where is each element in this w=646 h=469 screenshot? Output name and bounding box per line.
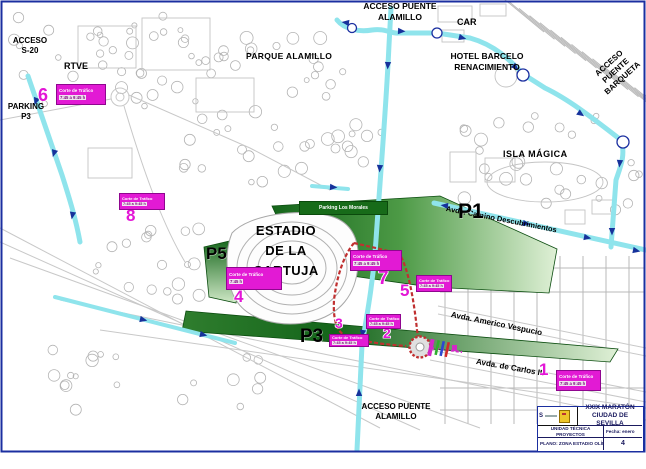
label-isla-magica: ISLA MÁGICA (503, 149, 568, 161)
marker-6: 6 (38, 85, 48, 106)
marker-1-note: Corte de Tráfico 7:45 a 9:45 h (556, 370, 601, 391)
date-field: Fecha: enero (604, 426, 642, 438)
marker-3: 3 (335, 315, 343, 331)
note-time: 7:45 a 9:45 h (559, 381, 586, 386)
note-title: Corte de Tráfico (369, 317, 399, 321)
marker-6-note: Corte de Tráfico 7:45 a 9:45 h (56, 84, 106, 105)
marker-4: 4 (234, 287, 243, 307)
technical-unit: UNIDAD TÉCNICA PROYECTOS (538, 426, 604, 438)
note-time: 7:45 a 9:45 h (59, 95, 86, 100)
plan-title: XXIX MARATÓN CIUDAD DE SEVILLA (578, 407, 642, 426)
label-acceso-puente-alamillo-sur: ACCESO PUENTE ALAMILLO (348, 402, 444, 423)
plano-field: PLANO: ZONA ESTADIO OLÍMPICO (538, 438, 604, 450)
note-title: Corte de Tráfico (419, 279, 449, 283)
parking-p3-label: P3 (300, 326, 323, 348)
marker-3-note: Corte de Tráfico 7:45 a 9:45 h (329, 334, 369, 347)
note-time: 7:45 a 9:45 h (369, 322, 394, 327)
marathon-access-map: ACCESO S-20 RTVE PARKING P3 PARQUE ALAMI… (0, 0, 646, 469)
note-time: 7:45 a 9:45 h (332, 341, 357, 346)
title-block-logo-cell: S (538, 407, 578, 426)
note-title: Corte de Tráfico (332, 336, 362, 340)
marker-5-note: Corte de Tráfico 7:45 a 9:45 h (416, 275, 452, 292)
note-title: Corte de Tráfico (59, 89, 93, 94)
note-title: Corte de Tráfico (559, 375, 593, 380)
label-hotel-barcelo: HOTEL BARCELO RENACIMIENTO (437, 51, 537, 73)
marker-7: 7 (378, 268, 389, 290)
marker-1: 1 (539, 360, 548, 380)
note-title: Corte de Tráfico (353, 255, 387, 260)
marker-5: 5 (400, 281, 409, 301)
parking-p1-label: P1 (458, 200, 484, 224)
marker-8-note: Corte de Tráfico 7:45 a 9:45 h (119, 193, 165, 210)
marker-2-note: Corte de Tráfico 7:45 a 9:45 h (366, 314, 401, 329)
label-acceso-puente-alamillo-norte: ACCESO PUENTE ALAMILLO (352, 1, 448, 23)
marker-4-note: Corte de Tráfico 7:45 h (226, 267, 282, 290)
note-time: 7:45 a 9:45 h (419, 284, 444, 289)
parking-p5-label: P5 (206, 244, 227, 264)
parking-los-morales-banner: Parking Los Morales (299, 201, 388, 215)
label-parque-alamillo: PARQUE ALAMILLO (246, 51, 332, 62)
label-car: CAR (457, 17, 477, 29)
note-time: 7:45 a 9:45 h (353, 261, 380, 266)
sheet-number: 4 (604, 438, 642, 450)
note-time: 7:45 a 9:45 h (122, 202, 147, 207)
note-title: Corte de Tráfico (229, 273, 263, 278)
label-rtve: RTVE (64, 61, 88, 73)
city-crest-icon (559, 410, 570, 423)
title-block: S XXIX MARATÓN CIUDAD DE SEVILLA UNIDAD … (537, 406, 644, 452)
note-time: 7:45 h (229, 279, 243, 284)
marker-7-note: Corte de Tráfico 7:45 a 9:45 h (350, 250, 402, 271)
label-acceso-s20: ACCESO S-20 (4, 36, 56, 57)
note-title: Corte de Tráfico (122, 197, 152, 201)
city-logo-mark: S (539, 413, 543, 419)
